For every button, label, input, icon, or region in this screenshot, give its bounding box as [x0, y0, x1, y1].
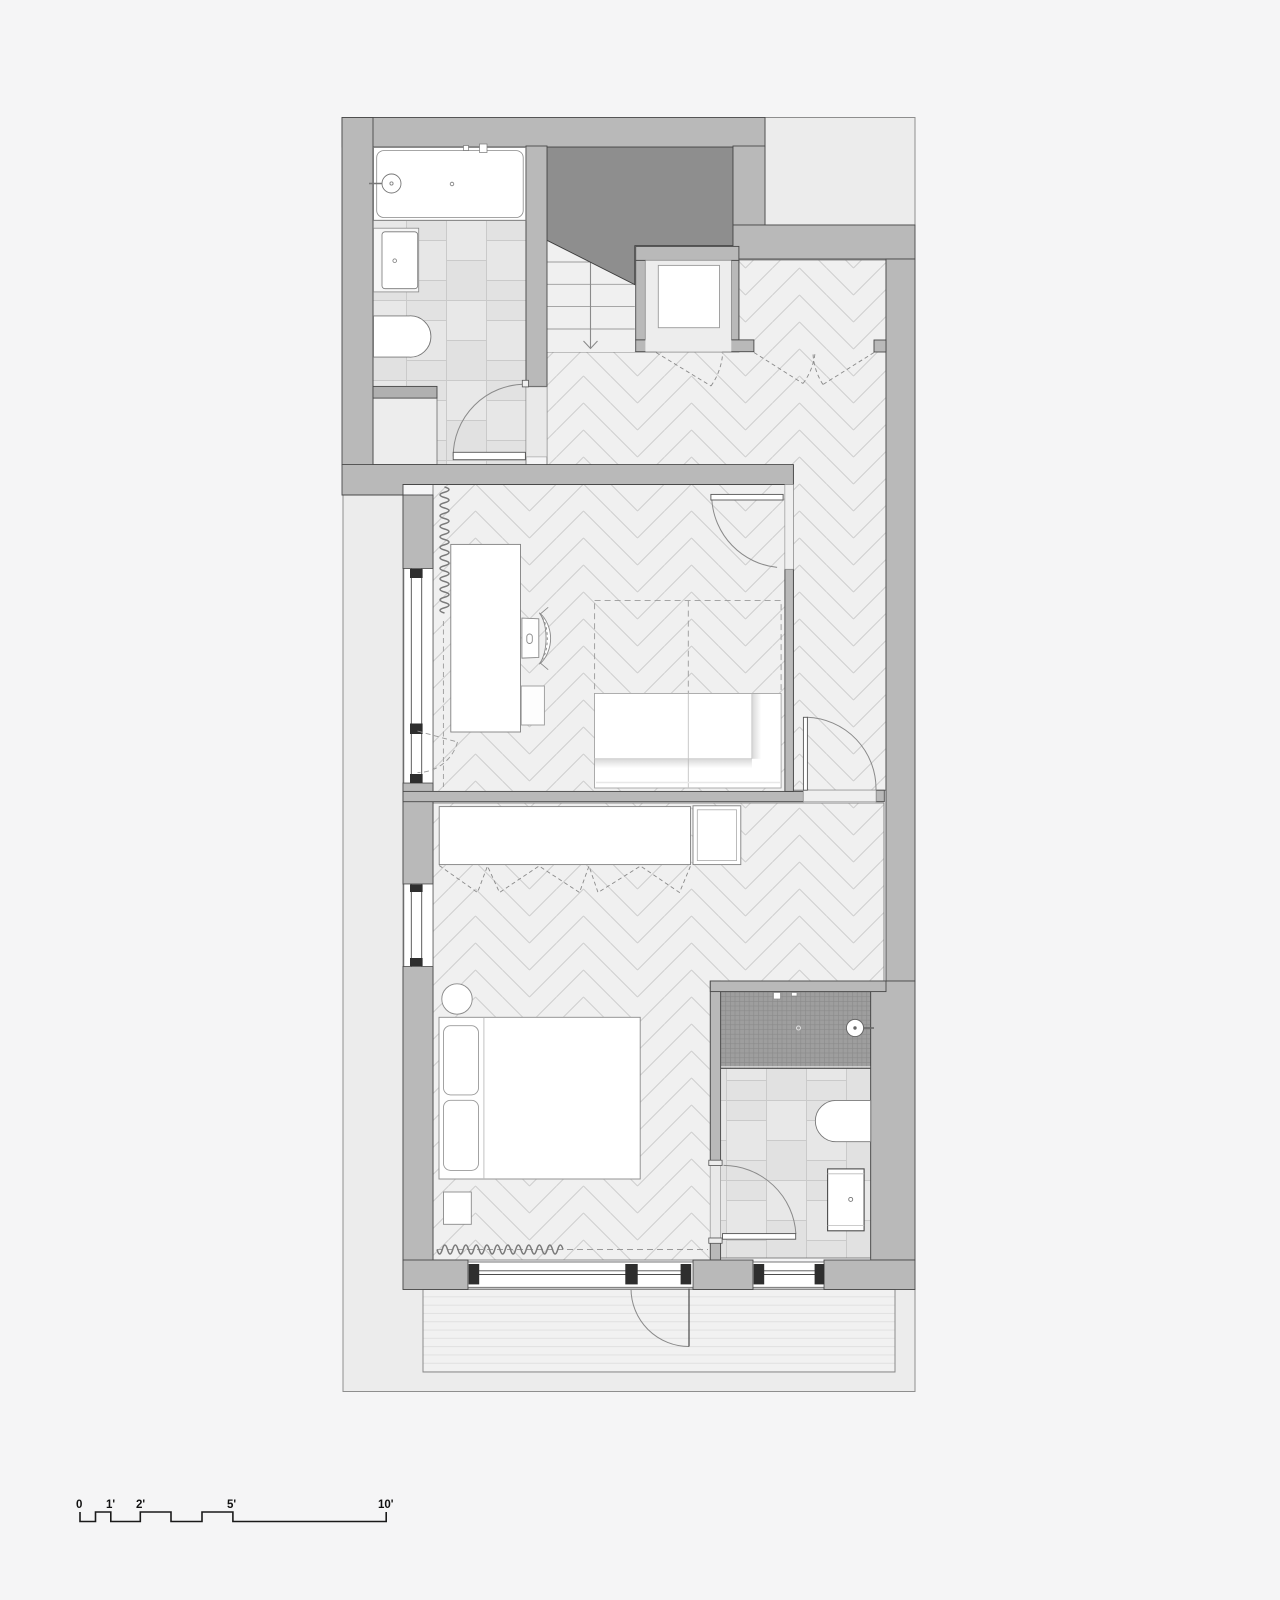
svg-text:5': 5' — [227, 1499, 236, 1511]
svg-text:0: 0 — [76, 1499, 82, 1511]
svg-text:2': 2' — [136, 1499, 145, 1511]
svg-text:1': 1' — [106, 1499, 115, 1511]
svg-text:10': 10' — [378, 1499, 394, 1511]
